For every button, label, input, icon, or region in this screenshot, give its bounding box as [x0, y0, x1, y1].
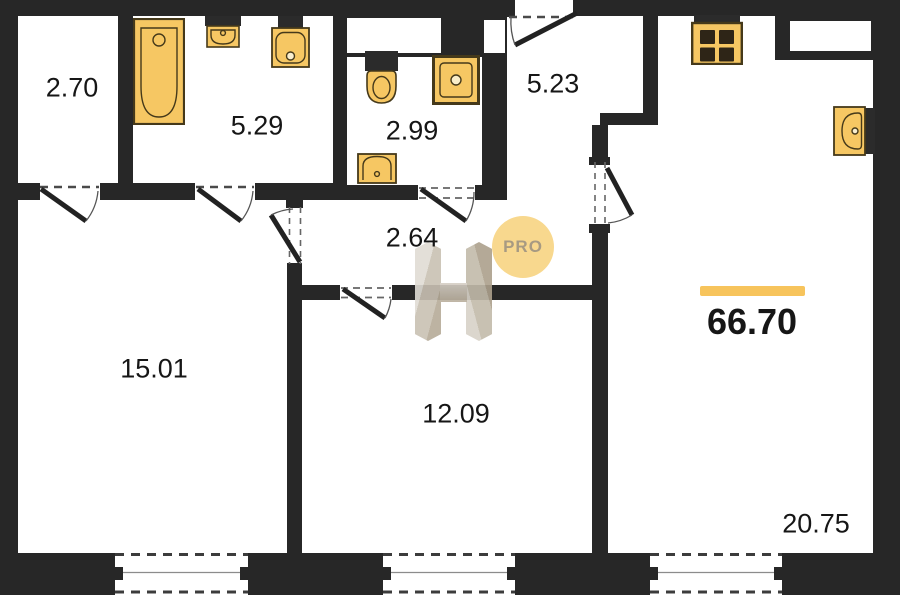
h-logo-crossbar — [440, 283, 467, 302]
window — [115, 555, 248, 593]
pro-badge: PRO — [492, 216, 554, 278]
room-area-label: 15.01 — [120, 354, 188, 385]
room-area-label: 5.23 — [527, 69, 580, 100]
h-logo-left-bar — [415, 242, 441, 341]
window — [383, 555, 515, 593]
entrance-door — [509, 13, 579, 45]
door — [196, 187, 254, 221]
room-area-label: 20.75 — [782, 509, 850, 540]
door — [341, 288, 391, 318]
door — [271, 207, 301, 264]
total-area-label: 66.70 — [707, 301, 797, 343]
room-area-label: 2.99 — [386, 116, 439, 147]
door — [595, 162, 632, 226]
room-area-label: 2.64 — [386, 223, 439, 254]
h-logo-watermark — [415, 242, 492, 341]
total-area-accent-bar — [700, 286, 805, 296]
floorplan: PRO 2.70 5.29 2.99 5.23 2.64 15.01 12.09… — [0, 0, 900, 595]
door — [419, 188, 476, 221]
room-area-label: 12.09 — [422, 399, 490, 430]
h-logo-right-bar — [466, 242, 492, 341]
door — [40, 187, 99, 221]
room-area-label: 5.29 — [231, 111, 284, 142]
window — [650, 555, 782, 593]
room-area-label: 2.70 — [46, 73, 99, 104]
